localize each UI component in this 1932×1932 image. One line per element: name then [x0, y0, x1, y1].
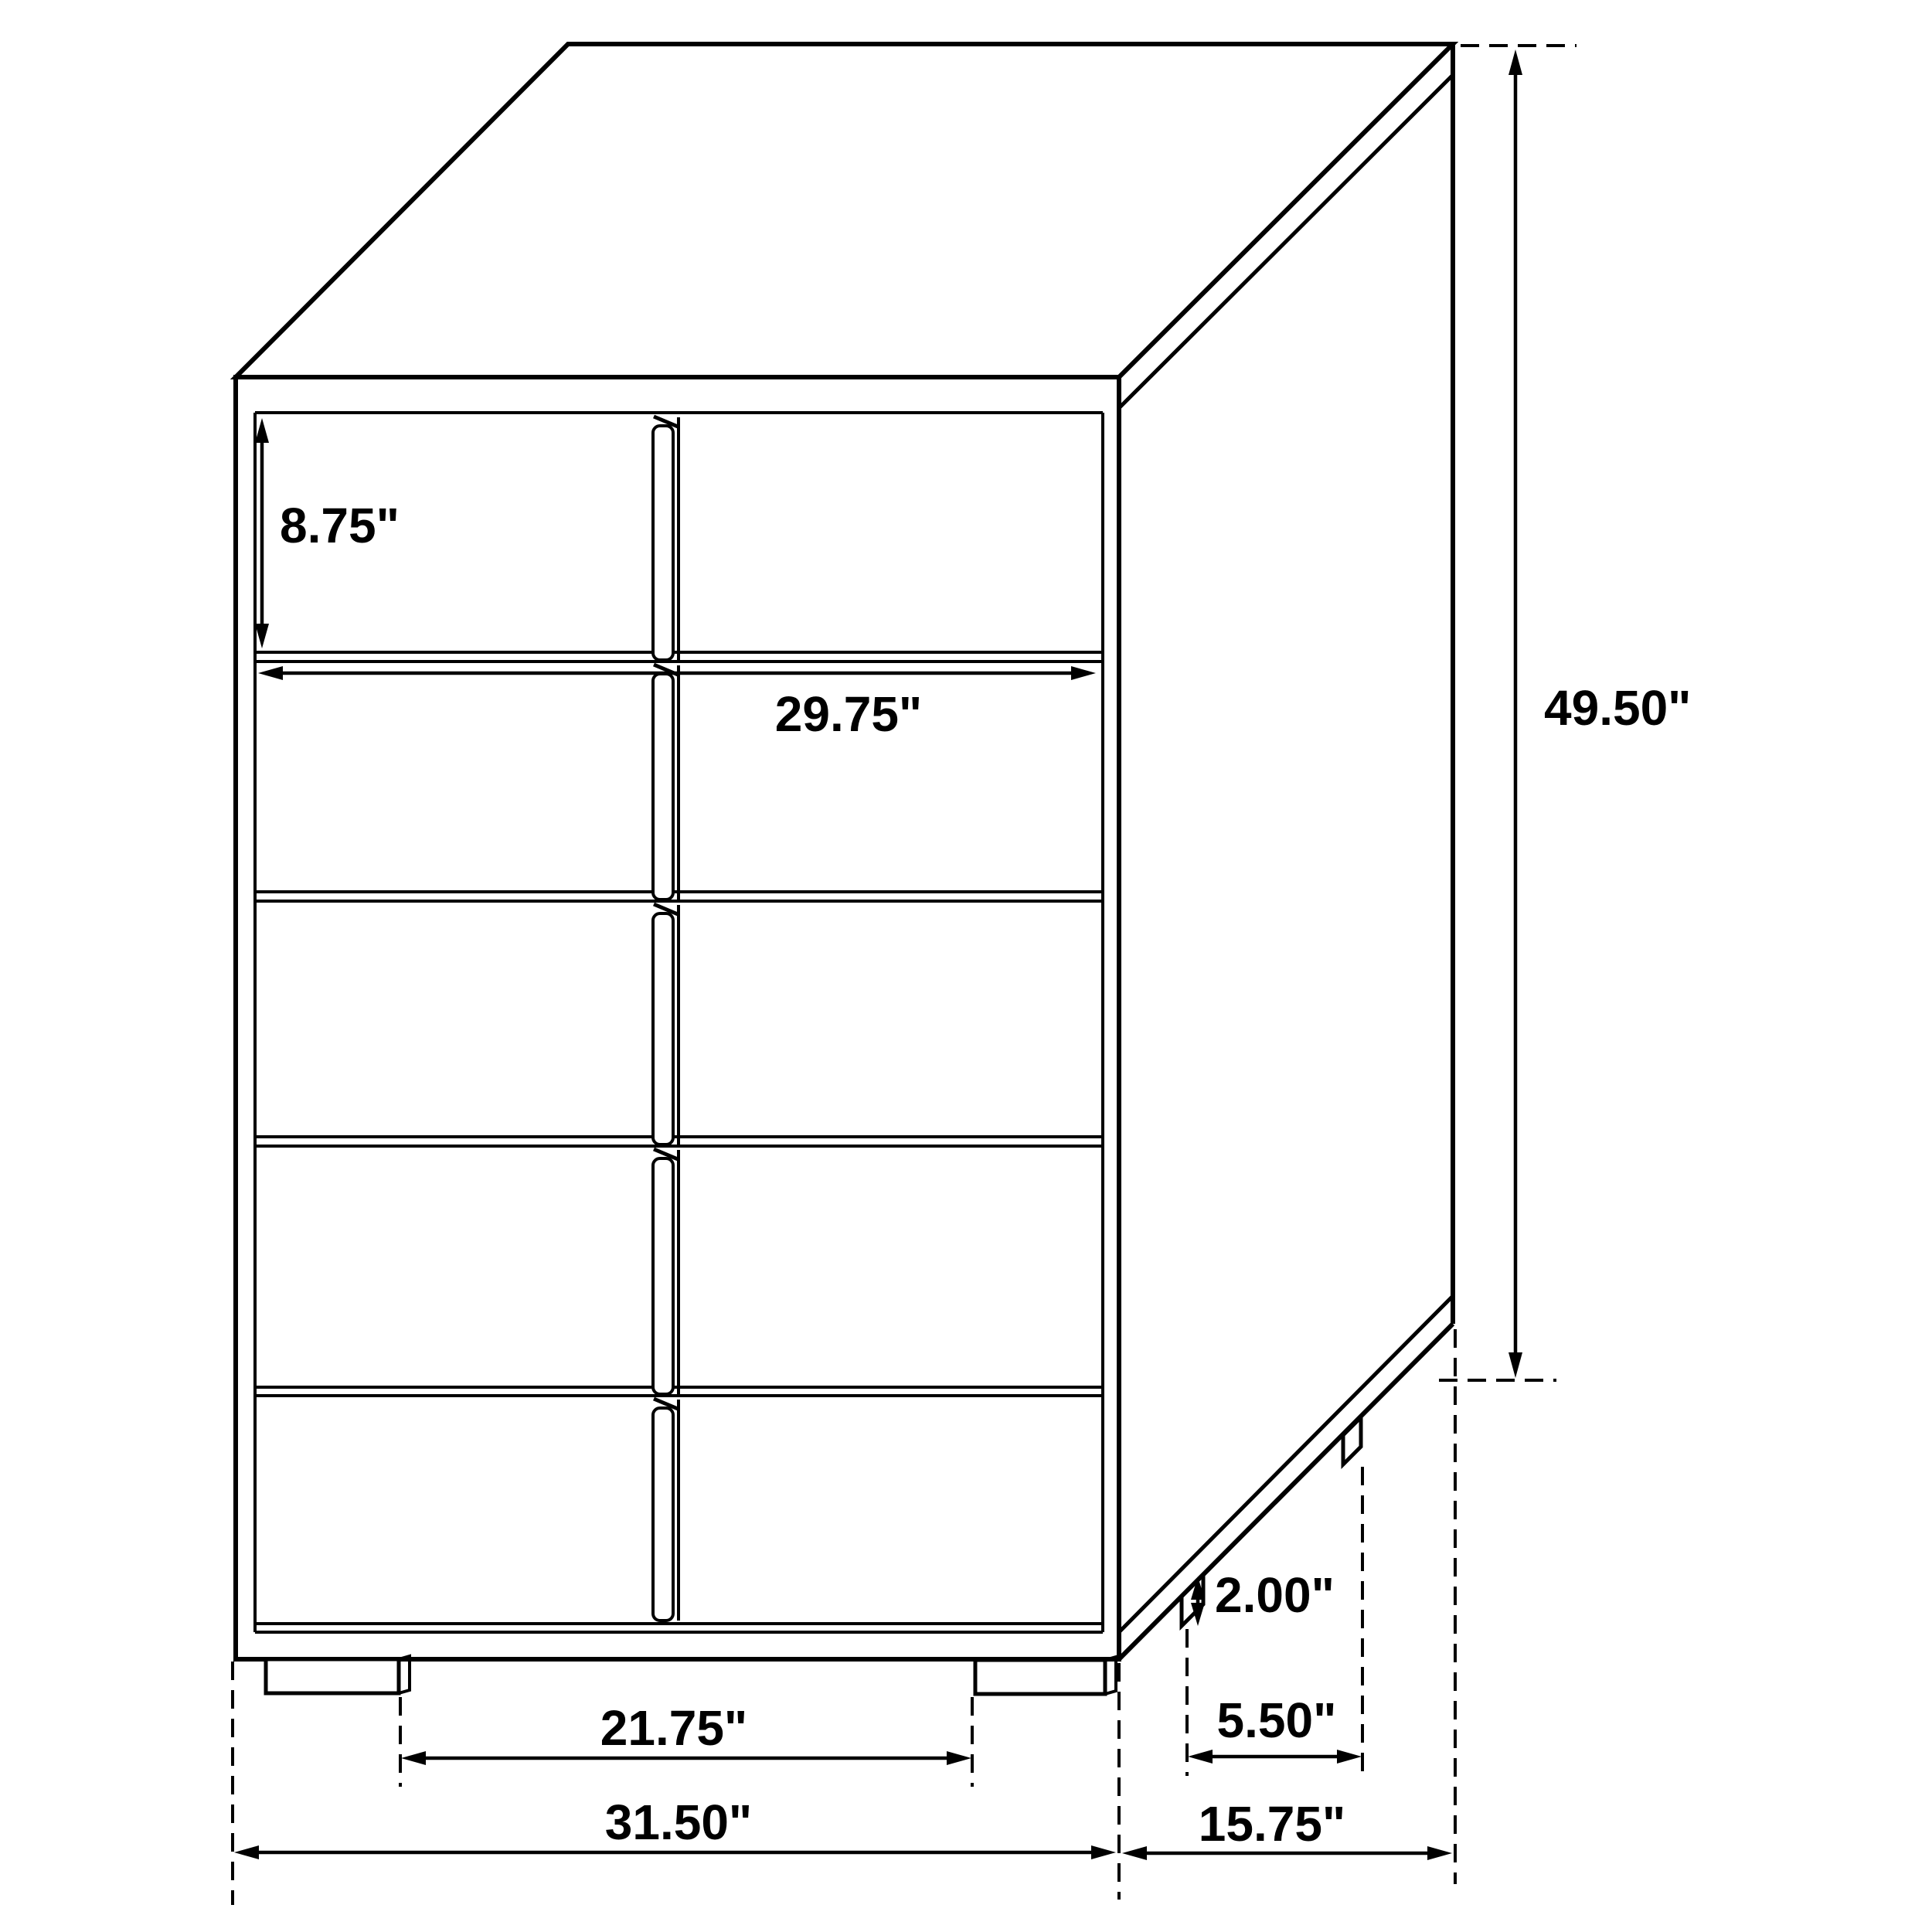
drawer-center-stile — [653, 1408, 673, 1621]
dim-label-front-feet-spacing: 21.75" — [600, 1700, 748, 1756]
dim-overall-depth: 15.75" — [1122, 1796, 1452, 1860]
drawer-center-stile — [653, 426, 673, 660]
front-left-foot — [266, 1659, 399, 1693]
dim-overall-height: 49.50" — [1509, 49, 1692, 1378]
chest-dimension-drawing: 8.75" 29.75" 49.50" 2.00" 5.50" 21.75" — [0, 0, 1932, 1932]
dim-label-drawer-height: 8.75" — [280, 498, 400, 553]
top-face — [236, 44, 1453, 377]
dim-overall-width: 31.50" — [234, 1794, 1116, 1859]
dim-label-overall-width: 31.50" — [605, 1794, 753, 1850]
dim-label-foot-height: 2.00" — [1215, 1567, 1335, 1623]
dim-label-side-feet-spacing: 5.50" — [1217, 1692, 1337, 1748]
dim-foot-height: 2.00" — [1191, 1567, 1335, 1626]
dim-side-feet-spacing: 5.50" — [1188, 1692, 1362, 1764]
drawer-center-stile — [653, 1158, 673, 1394]
cabinet-outline — [236, 44, 1453, 1659]
dim-label-overall-depth: 15.75" — [1199, 1796, 1346, 1852]
dim-front-feet-spacing: 21.75" — [401, 1700, 971, 1765]
front-right-foot — [975, 1660, 1105, 1694]
dim-label-drawer-width: 29.75" — [775, 686, 923, 742]
side-back-foot — [1343, 1417, 1361, 1464]
dim-label-overall-height: 49.50" — [1544, 680, 1692, 736]
dimension-diagram: 8.75" 29.75" 49.50" 2.00" 5.50" 21.75" — [0, 0, 1932, 1932]
drawer-center-stile — [653, 913, 673, 1145]
drawer-center-stile — [653, 674, 673, 900]
